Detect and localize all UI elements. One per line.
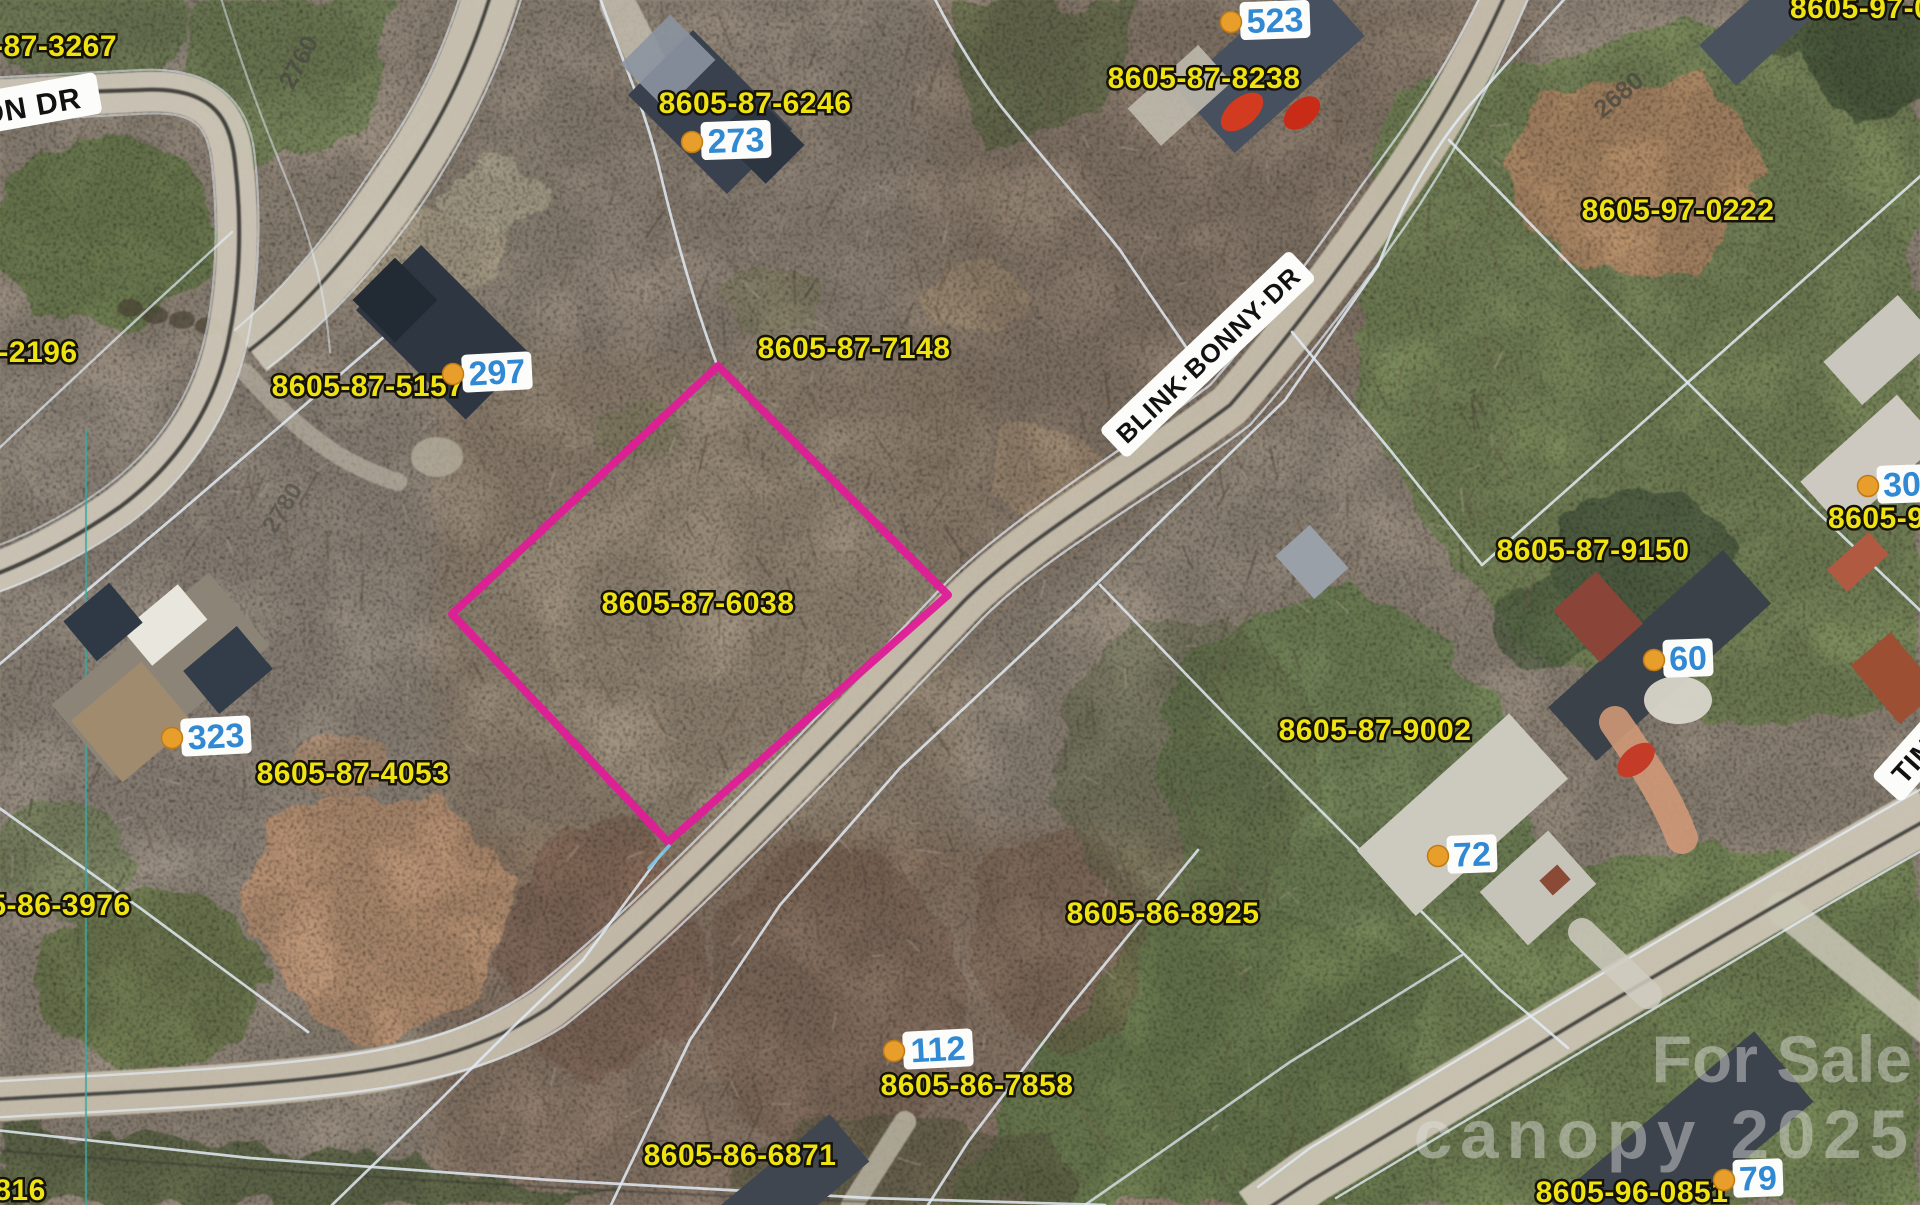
svg-text:8605-86-7858: 8605-86-7858 [881,1069,1074,1102]
svg-text:30: 30 [1882,465,1920,504]
svg-text:273: 273 [707,121,765,161]
svg-text:5-86-3976: 5-86-3976 [0,889,131,922]
svg-text:8605-87-6246: 8605-87-6246 [659,87,852,120]
svg-text:-87-3267: -87-3267 [0,30,117,63]
svg-text:323: 323 [187,717,246,758]
svg-text:For Sale: For Sale [1652,1022,1912,1096]
svg-text:8605-97-0222: 8605-97-0222 [1582,194,1775,227]
svg-text:8605-87-6038: 8605-87-6038 [602,587,795,620]
svg-text:297: 297 [468,353,527,394]
svg-text:-2196: -2196 [0,336,78,369]
svg-text:8605-87-5157: 8605-87-5157 [272,370,465,403]
svg-text:8605-87-9150: 8605-87-9150 [1497,534,1690,567]
svg-text:112: 112 [910,1030,967,1071]
svg-text:8605-87-7148: 8605-87-7148 [758,332,951,365]
svg-text:8605-96-0851: 8605-96-0851 [1536,1176,1729,1205]
svg-text:8605-97-0448: 8605-97-0448 [1790,0,1920,25]
svg-text:8605-86-8925: 8605-86-8925 [1067,897,1260,930]
svg-text:8605-87-9002: 8605-87-9002 [1279,714,1472,747]
svg-text:816: 816 [0,1174,46,1205]
svg-text:8605-97: 8605-97 [1828,502,1920,535]
svg-text:8605-86-6871: 8605-86-6871 [644,1139,837,1172]
svg-text:canopy 2025: canopy 2025 [1414,1096,1916,1173]
svg-text:8605-87-8238: 8605-87-8238 [1108,62,1301,95]
svg-text:8605-87-4053: 8605-87-4053 [257,757,450,790]
svg-text:523: 523 [1246,1,1304,41]
svg-text:60: 60 [1668,639,1707,678]
svg-text:72: 72 [1452,835,1491,874]
